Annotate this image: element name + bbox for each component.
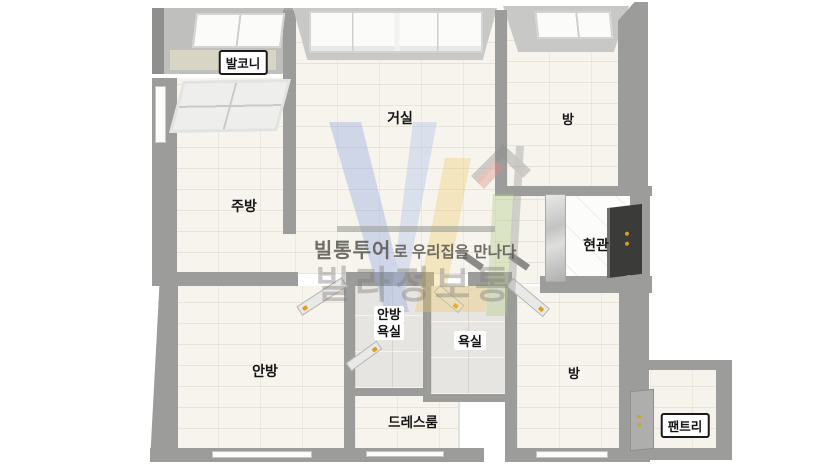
hallway-floor xyxy=(495,196,545,284)
bathroom-bottom-wall xyxy=(423,394,511,402)
left-wall-window xyxy=(155,86,166,143)
dress-room-opening xyxy=(458,394,507,450)
room-label-line: 안방 xyxy=(374,306,404,323)
bathroom-right-wall xyxy=(505,286,517,462)
pantry-bottom-wall xyxy=(648,448,732,460)
room-label-entrance: 현관 xyxy=(583,235,609,255)
floor-plan-canvas: 발코니 거실 방 주방 현관 안방 안방 욕실 욕실 방 드레스룸 팬트리 빌통… xyxy=(0,0,840,472)
living-room-window xyxy=(309,11,483,53)
room-label-living: 거실 xyxy=(387,108,413,128)
room-label-dress-room: 드레스룸 xyxy=(388,411,438,431)
room-label-master-bathroom: 안방 욕실 xyxy=(374,306,404,340)
master-bedroom-window xyxy=(212,451,312,458)
pantry-right-wall xyxy=(716,360,732,460)
kitchen-window xyxy=(169,79,291,133)
room-label-room-top: 방 xyxy=(562,109,574,128)
hallway-wall-segment xyxy=(346,272,434,286)
bathroom-divider-wall xyxy=(423,286,431,396)
wall-kitchen-living xyxy=(283,10,296,234)
pantry-floor xyxy=(650,370,716,450)
outer-wall-right-top xyxy=(618,2,648,190)
room-label-room-bottom: 방 xyxy=(568,363,580,382)
dress-room-window xyxy=(366,451,444,457)
entrance-shoe-closet xyxy=(545,194,566,282)
room-bottom-right-window xyxy=(536,451,608,458)
master-bathroom-bottom-wall xyxy=(344,388,425,396)
outer-wall-left-bottom xyxy=(150,278,178,462)
balcony-window xyxy=(192,13,285,48)
room-label-bathroom: 욕실 xyxy=(454,331,486,350)
hallway-wall-segment xyxy=(468,272,512,286)
room-top-right-window xyxy=(535,11,614,39)
room-label-pantry: 팬트리 xyxy=(661,413,710,438)
front-door-icon xyxy=(607,204,642,278)
room-label-balcony: 발코니 xyxy=(219,50,268,75)
pantry-door-icon xyxy=(630,389,654,452)
room-label-kitchen: 주방 xyxy=(231,196,257,216)
room-label-master-bedroom: 안방 xyxy=(252,361,278,381)
wall-living-room-top xyxy=(495,10,507,188)
room-label-line: 욕실 xyxy=(374,323,404,340)
room-top-right-bottom-wall xyxy=(495,186,652,196)
